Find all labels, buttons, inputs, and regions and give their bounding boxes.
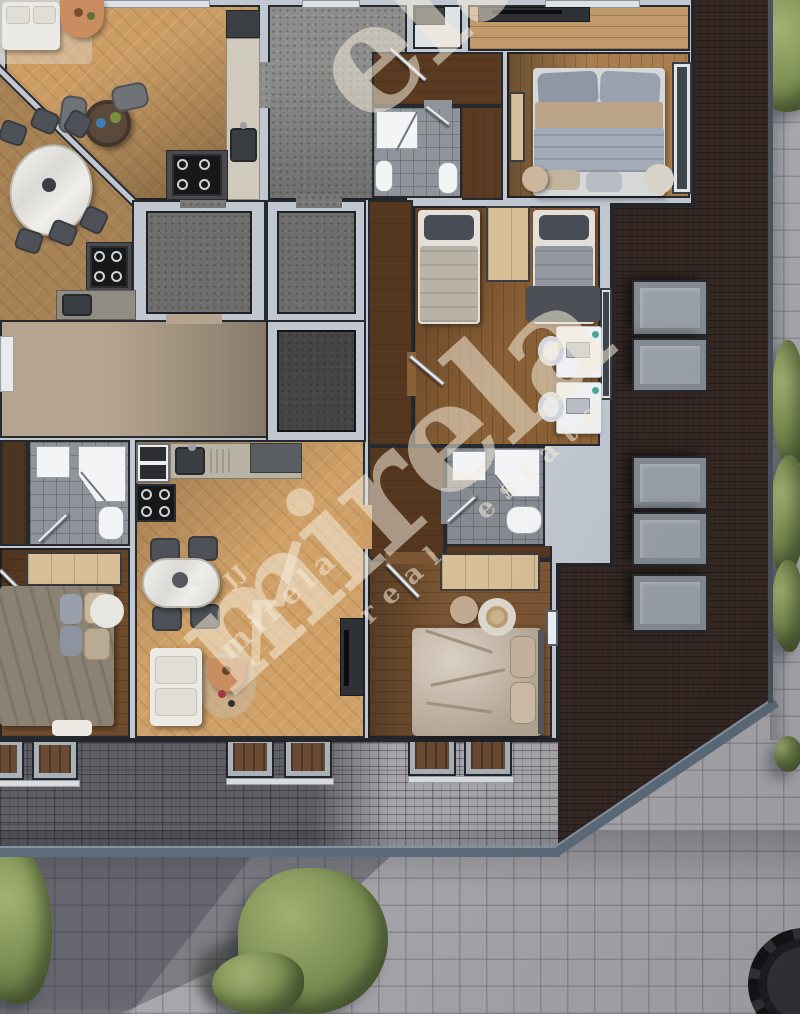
kitchen-sink <box>62 294 92 316</box>
blanket <box>420 246 478 322</box>
outer-wall-edge <box>556 563 614 567</box>
pillow-gray <box>60 594 82 624</box>
hedge-right-2 <box>770 455 800 575</box>
window-master-glass <box>677 67 687 189</box>
bathtub <box>506 506 542 534</box>
hall-apartment-c <box>372 52 503 106</box>
desk-decor <box>592 331 599 338</box>
headboard <box>538 630 544 734</box>
pillow <box>510 682 536 724</box>
sofa-cushion <box>33 6 56 24</box>
chair <box>152 606 182 631</box>
tv <box>492 10 562 14</box>
wardrobe-d <box>440 553 540 591</box>
outer-wall-edge <box>0 738 560 742</box>
wardrobe <box>509 92 525 162</box>
closet-sliver <box>0 440 28 546</box>
door-opening <box>166 314 222 324</box>
pillow <box>84 628 110 660</box>
flowers <box>218 690 226 698</box>
pillow <box>510 636 536 678</box>
door-opening <box>296 194 342 208</box>
burner <box>159 506 170 517</box>
bidet <box>375 160 393 192</box>
hall-carpet-shading <box>0 320 268 438</box>
decor-small <box>228 700 235 707</box>
roof-window <box>286 738 330 776</box>
round-rug <box>644 164 674 194</box>
burner <box>111 271 122 282</box>
hall-central-n <box>368 200 413 446</box>
skylight <box>634 340 706 390</box>
roof-window-sill <box>0 780 80 787</box>
plate <box>192 578 201 587</box>
hall-console <box>0 336 14 392</box>
tv <box>344 630 349 686</box>
faucet <box>188 443 196 451</box>
kitchen-sink <box>175 447 205 475</box>
roof-window-sill <box>226 778 334 785</box>
roof-window <box>228 738 272 776</box>
pillow-small <box>544 170 580 190</box>
tree-bottom-lobe <box>212 952 304 1014</box>
laptop <box>566 398 590 414</box>
sofa-cushion <box>155 688 197 716</box>
decor <box>74 8 83 17</box>
skylight <box>634 282 706 334</box>
roof-edge-right <box>768 0 773 703</box>
outer-wall-edge <box>610 203 695 207</box>
desk-chair <box>538 392 564 422</box>
hedge-right-3 <box>772 560 800 652</box>
stair-core-2-floor <box>277 211 356 314</box>
pillow-small <box>586 172 622 192</box>
sofa-cushion <box>6 6 30 24</box>
oven <box>140 447 166 461</box>
desk-chair <box>538 336 564 366</box>
fruit-bowl <box>172 572 188 588</box>
skylight <box>634 576 706 630</box>
bed-throw <box>535 102 663 130</box>
door-opening <box>385 552 435 564</box>
light-well-floor <box>277 330 356 432</box>
duvet <box>534 128 664 172</box>
laptop <box>566 342 590 358</box>
window-kids-glass <box>603 292 609 396</box>
bush-roof-corner <box>774 736 800 772</box>
decor <box>222 666 231 675</box>
toilet <box>438 162 458 194</box>
roof-window <box>0 740 22 778</box>
pillow-gray <box>60 626 82 656</box>
hall-central-s <box>368 446 445 560</box>
round-rug <box>90 594 124 628</box>
skylight <box>634 514 706 564</box>
burner <box>177 159 188 170</box>
roof-window <box>34 740 76 778</box>
desk-decor <box>592 387 599 394</box>
window-top <box>100 0 210 8</box>
door-opening <box>362 505 372 549</box>
gutter-bottom <box>0 846 560 857</box>
pillow-dark <box>424 215 474 240</box>
pouf <box>450 596 478 624</box>
burner <box>94 271 105 282</box>
decor-cup <box>96 118 106 128</box>
kitchen-cabinet <box>226 10 260 38</box>
shower <box>376 111 418 149</box>
stair-core-1-floor <box>146 211 252 314</box>
skylight <box>634 458 706 508</box>
ottoman <box>52 720 92 736</box>
pillow-dark <box>539 215 589 240</box>
counter-dark <box>250 443 302 473</box>
straw-hat <box>486 606 508 628</box>
kitchen-sink <box>230 128 257 162</box>
plant <box>87 12 95 20</box>
floorplan-render: mirela ela mirela real estate JJ <box>0 0 800 1014</box>
decor-bowl <box>42 178 56 192</box>
burner <box>141 506 152 517</box>
burner <box>199 179 210 190</box>
burner <box>159 489 170 500</box>
roof-window-sill <box>408 776 514 783</box>
outer-wall-edge <box>556 563 560 742</box>
burner <box>111 251 122 262</box>
drainboard <box>210 449 234 473</box>
wardrobe-e <box>26 552 122 586</box>
wardrobe-kids <box>486 206 530 282</box>
window-bedroom-d <box>546 610 558 646</box>
kitchen-counter <box>226 38 260 200</box>
burner <box>199 159 210 170</box>
window-top <box>302 0 360 8</box>
burner <box>177 179 188 190</box>
decor-plant <box>110 112 121 123</box>
pouf <box>522 166 548 192</box>
sink <box>36 446 70 478</box>
faucet <box>240 122 247 129</box>
microwave <box>140 465 166 479</box>
sink <box>452 451 486 481</box>
hall-apartment-c-side <box>462 106 503 200</box>
shelf-unit <box>415 7 445 25</box>
burner <box>141 489 152 500</box>
rug-dark <box>526 286 600 322</box>
burner <box>94 251 105 262</box>
sofa-cushion <box>155 656 197 684</box>
toilet <box>98 506 124 540</box>
